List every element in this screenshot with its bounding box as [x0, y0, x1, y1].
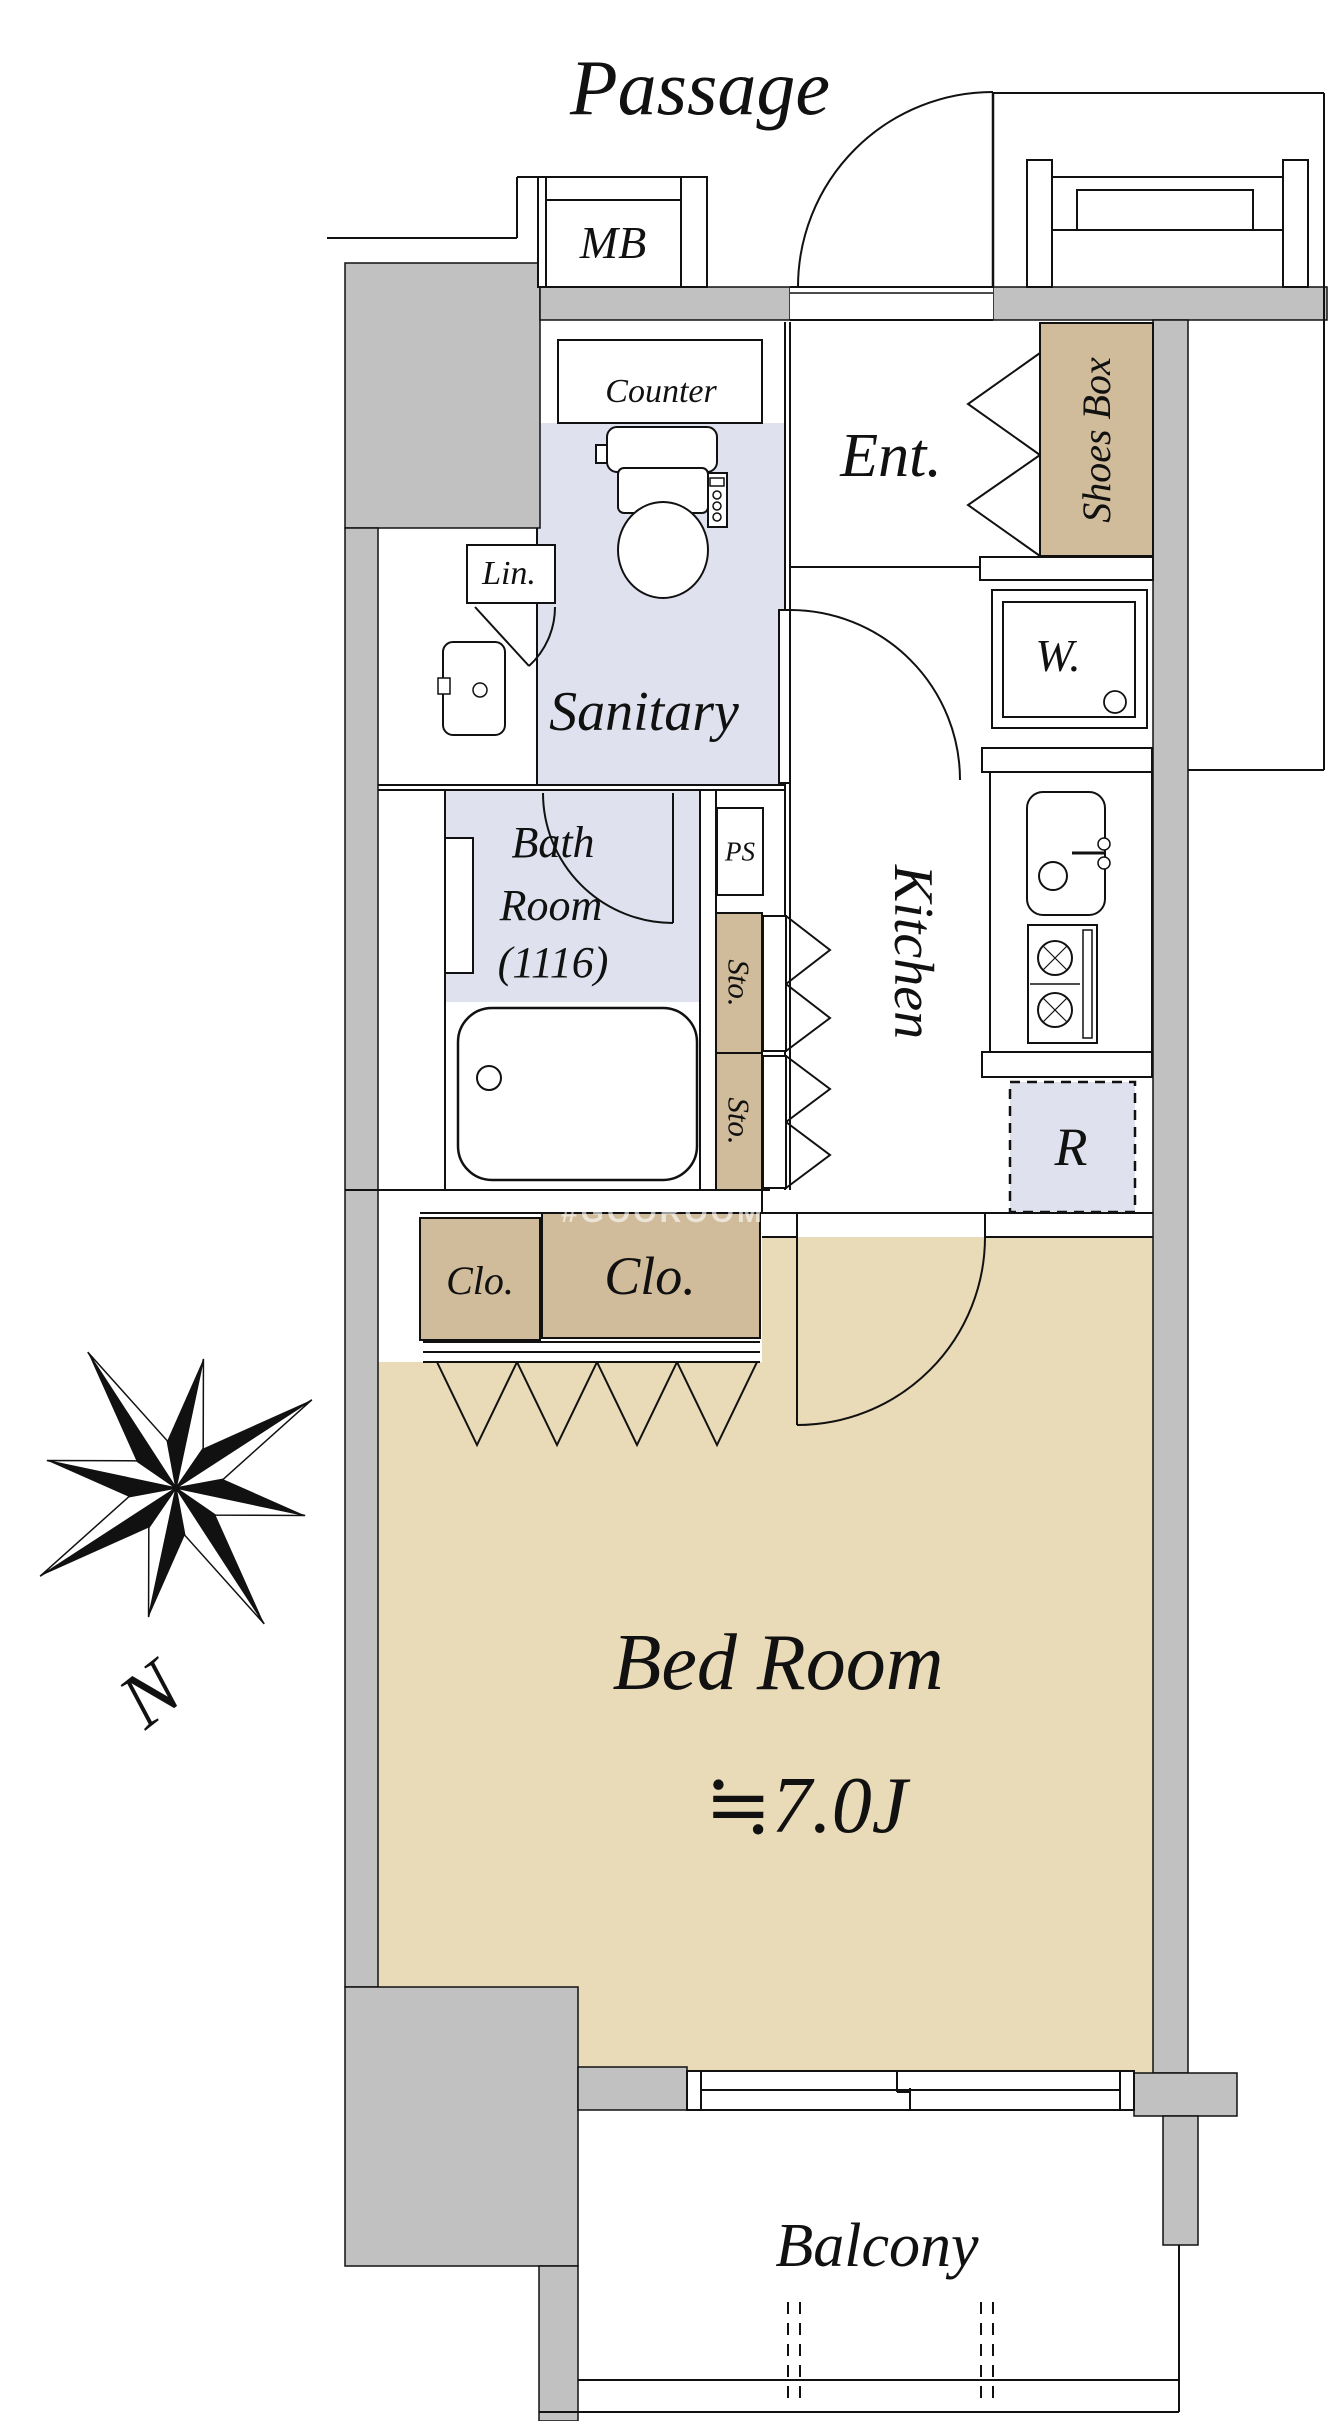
bath-label-line3: (1116) [498, 941, 609, 985]
meter-box-label: MB [580, 220, 646, 266]
north-compass-star [40, 1352, 312, 1624]
bathtub [458, 1008, 697, 1180]
entry-step [980, 557, 1153, 580]
balcony-window [687, 2071, 1134, 2110]
bath-niche [445, 838, 473, 973]
sanitary-label: Sanitary [549, 684, 739, 740]
sanitary-door [779, 610, 960, 783]
passage-label: Passage [570, 49, 830, 127]
washbasin [438, 642, 505, 735]
closet-small-label: Clo. [446, 1261, 514, 1301]
storage-lower-label: Sto. [724, 1097, 755, 1144]
storage-upper-label: Sto. [724, 959, 755, 1006]
washer-label: W. [1035, 633, 1081, 679]
bedroom-label: Bed Room [612, 1623, 943, 1703]
refrigerator-label: R [1055, 1120, 1088, 1174]
linen-label: Lin. [482, 557, 536, 591]
balcony-label: Balcony [775, 2215, 978, 2277]
floor-plan: Passage MB Counter Ent. Shoes Box W. Lin… [0, 0, 1329, 2421]
storage-boxes [716, 913, 830, 1190]
kitchen-stove [1028, 925, 1097, 1043]
kitchen-label: Kitchen [885, 865, 941, 1039]
bath-label-line2: Room [500, 884, 603, 928]
bath-label-line1: Bath [511, 821, 594, 865]
pipe-space-label: PS [725, 839, 755, 866]
closet-large-label: Clo. [604, 1249, 696, 1303]
shoes-box-label: Shoes Box [1077, 357, 1117, 523]
counter-label: Counter [605, 375, 716, 409]
watermark: #GOOROOM [561, 1198, 765, 1228]
entrance-label: Ent. [840, 425, 942, 487]
balcony-partition-lines [788, 2302, 993, 2398]
shoes-box [968, 323, 1153, 556]
bedroom-size-label: ≒7.0J [705, 1766, 908, 1846]
passage-railing [1027, 160, 1308, 287]
kitchen-sink [1027, 792, 1110, 915]
